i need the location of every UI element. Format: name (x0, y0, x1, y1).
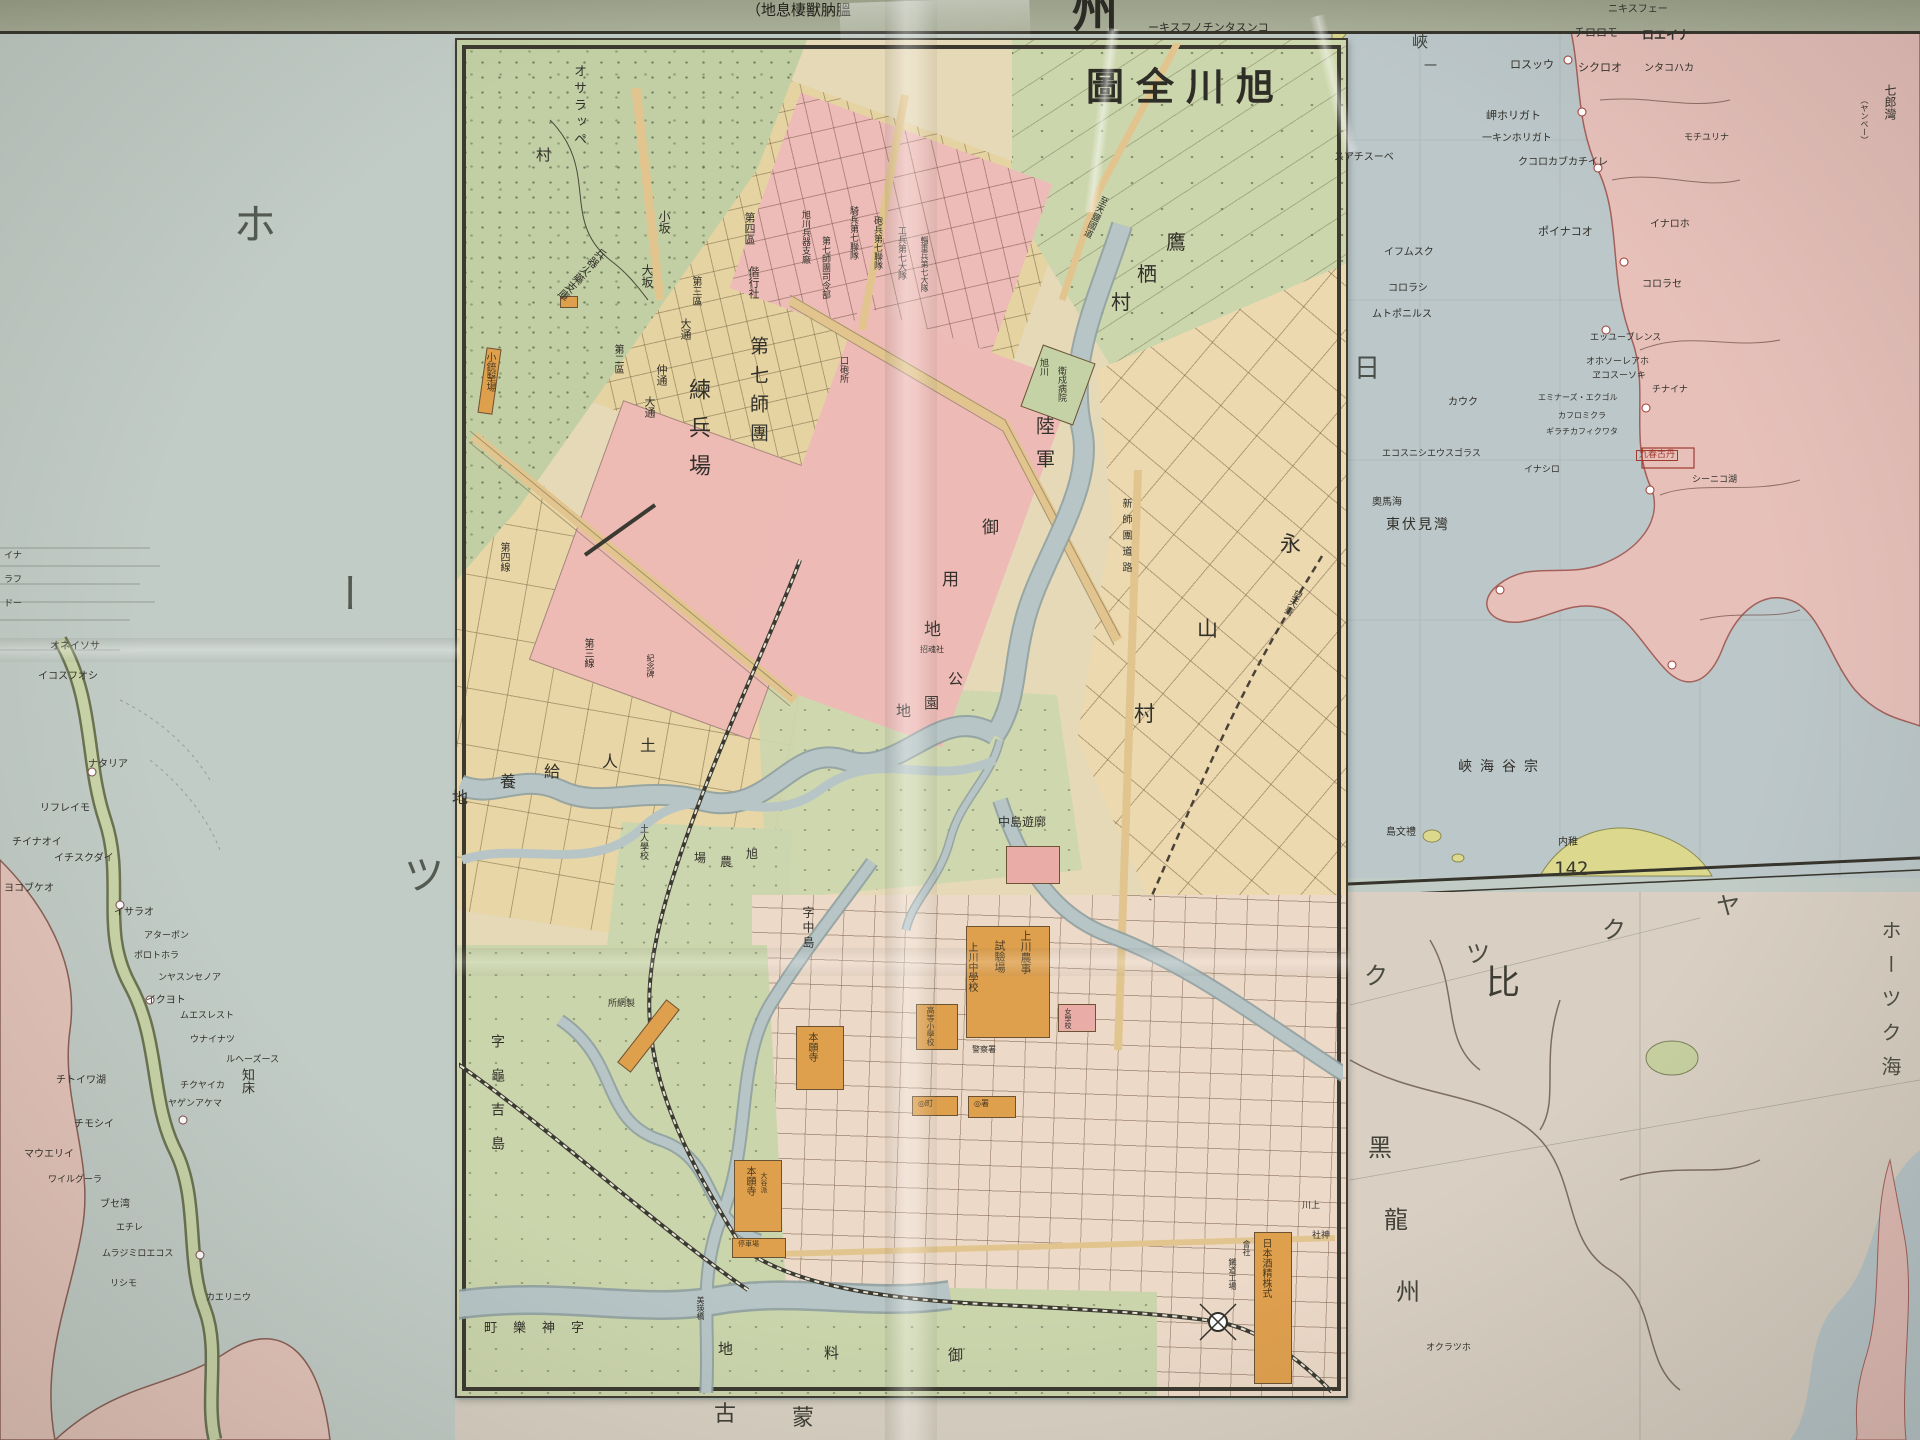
top-margin-strip (0, 0, 1920, 34)
asahikawa-inset-map (455, 38, 1348, 1398)
bottom-strip-land (455, 1400, 1350, 1440)
map-photo: { "title": { "display": "圖全川旭", "reading… (0, 0, 1920, 1440)
northeast-asia-panel (1348, 892, 1920, 1440)
karafuto-panel (1332, 0, 1920, 896)
